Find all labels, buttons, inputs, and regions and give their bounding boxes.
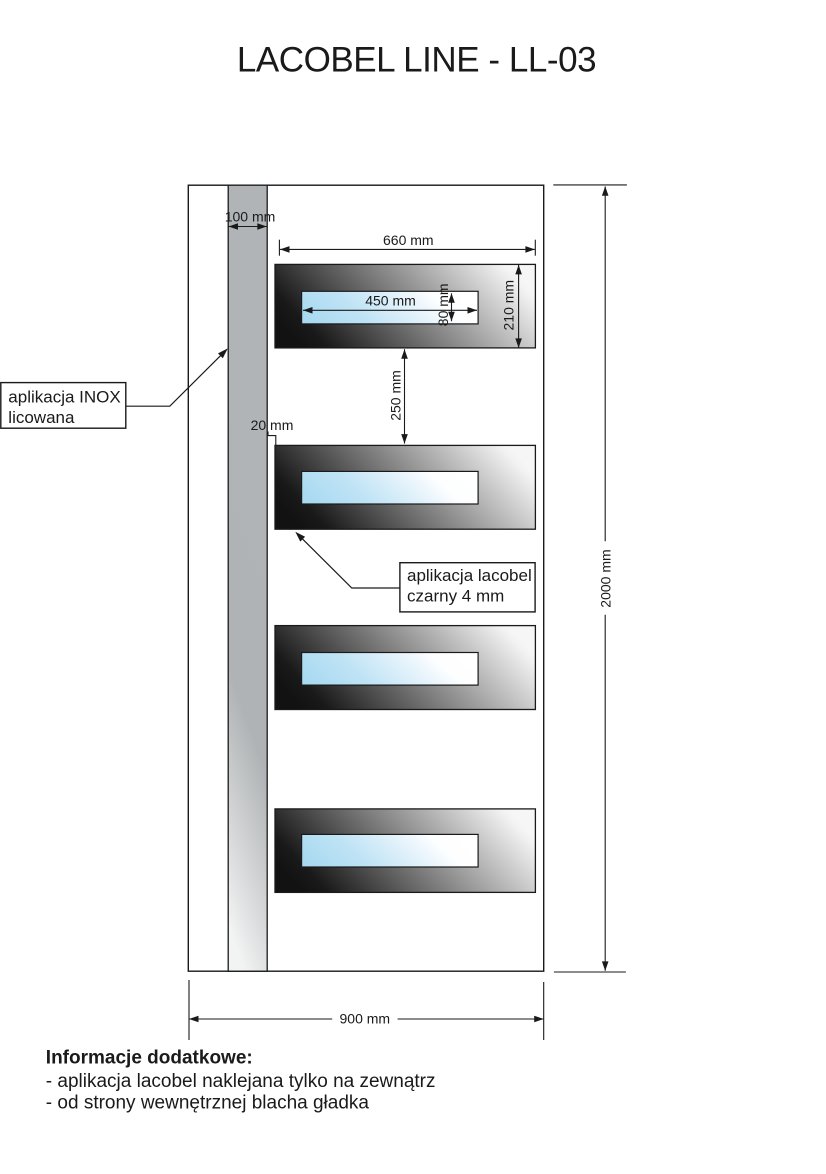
svg-text:2000 mm: 2000 mm: [597, 549, 613, 607]
svg-text:- od strony wewnętrznej blacha: - od strony wewnętrznej blacha gładka: [46, 1093, 370, 1114]
svg-text:LACOBEL LINE - LL-03: LACOBEL LINE - LL-03: [237, 41, 596, 80]
svg-text:450 mm: 450 mm: [365, 293, 416, 309]
svg-text:aplikacja INOX: aplikacja INOX: [8, 388, 120, 407]
svg-text:licowana: licowana: [8, 408, 75, 427]
svg-text:20 mm: 20 mm: [251, 417, 294, 433]
svg-text:80 mm: 80 mm: [435, 283, 451, 326]
svg-text:aplikacja lacobel: aplikacja lacobel: [407, 566, 532, 585]
svg-text:100 mm: 100 mm: [225, 209, 276, 225]
svg-text:250 mm: 250 mm: [388, 370, 404, 421]
svg-text:- aplikacja lacobel naklejana: - aplikacja lacobel naklejana tylko na z…: [46, 1071, 436, 1092]
svg-text:660 mm: 660 mm: [383, 232, 434, 248]
svg-text:Informacje dodatkowe:: Informacje dodatkowe:: [46, 1048, 253, 1069]
svg-text:900 mm: 900 mm: [340, 1011, 391, 1027]
svg-text:czarny 4 mm: czarny 4 mm: [407, 587, 504, 606]
svg-text:210 mm: 210 mm: [501, 280, 517, 331]
